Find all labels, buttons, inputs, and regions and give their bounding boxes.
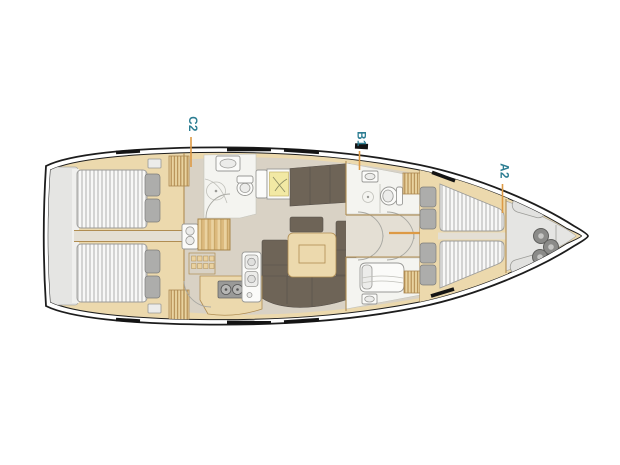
cabin-label-b1[interactable]: B1 bbox=[355, 131, 367, 147]
pillow bbox=[145, 199, 160, 222]
yacht-floorplan: C2 B1 A2 bbox=[0, 0, 620, 465]
pillow bbox=[420, 209, 436, 229]
wet-locker bbox=[256, 170, 267, 198]
aft-head bbox=[204, 154, 256, 218]
locker-louvre bbox=[169, 156, 189, 186]
pillow bbox=[420, 243, 436, 263]
pillow bbox=[145, 174, 160, 196]
corridor bbox=[346, 216, 424, 257]
pillow bbox=[420, 187, 436, 207]
aft-cabin-divider bbox=[74, 230, 186, 242]
pillow bbox=[420, 265, 436, 285]
pillow bbox=[145, 276, 160, 298]
pillow bbox=[145, 250, 160, 273]
saloon-sideboard bbox=[290, 164, 352, 207]
companionway-steps bbox=[198, 219, 230, 250]
locker-louvre bbox=[169, 290, 189, 320]
cabin-label-c2[interactable]: C2 bbox=[186, 116, 198, 132]
nightstand bbox=[148, 304, 161, 313]
nav-station-chart-table bbox=[267, 169, 291, 199]
cabin-label-a2[interactable]: A2 bbox=[498, 163, 510, 179]
seat-back bbox=[290, 217, 323, 232]
nightstand bbox=[148, 159, 161, 168]
floorplan-svg: C2 B1 A2 bbox=[0, 0, 620, 465]
locker-louvre bbox=[404, 271, 420, 293]
saloon-table bbox=[288, 233, 336, 277]
interior bbox=[48, 150, 576, 322]
